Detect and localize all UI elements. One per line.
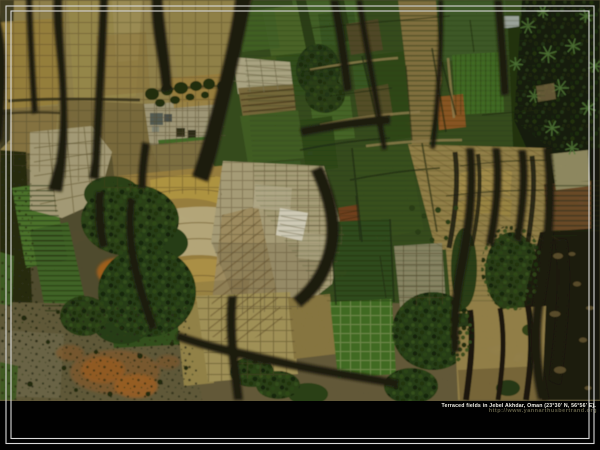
- svg-text:http://www.yannarthusbertrand.: http://www.yannarthusbertrand.org: [489, 408, 597, 414]
